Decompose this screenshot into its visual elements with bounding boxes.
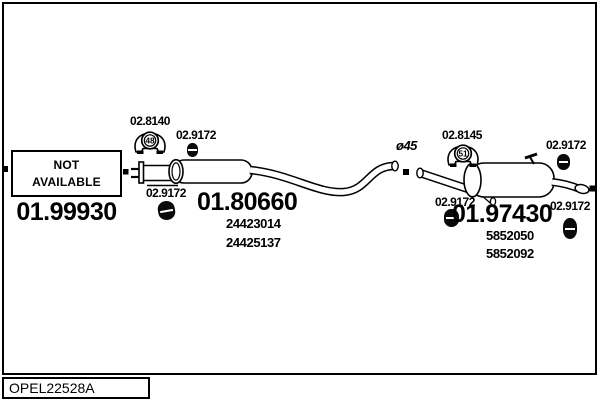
front-section-part-number: 01.99930 (11, 200, 122, 225)
front-connection-marker (2, 166, 8, 172)
clamp-icon-front-top (187, 143, 198, 157)
rear-silencer-shape (464, 163, 554, 197)
exhaust-parts-diagram: NOT AVAILABLE 01.99930 02.8140 48 02.917… (0, 0, 600, 400)
drawing-code-box: OPEL22528A (2, 377, 150, 399)
clamp-part-number-front-bottom: 02.9172 (146, 187, 186, 199)
clamp-icon-rear-top (557, 154, 570, 170)
not-available-box: NOT AVAILABLE (11, 150, 122, 197)
not-available-label: NOT AVAILABLE (28, 157, 106, 189)
clamp-part-number-rear-top: 02.9172 (546, 139, 586, 151)
tail-pipe-shape (552, 182, 590, 195)
front-gasket-part-number: 02.8140 (129, 115, 171, 127)
tail-end-marker (590, 186, 596, 192)
rear-silencer-oe-number-2: 5852092 (486, 247, 532, 260)
rear-silencer-part-number: 01.97430 (452, 202, 552, 227)
pipe-diameter-label: ø45 (396, 139, 417, 152)
clamp-icon-rear-bottom (563, 218, 577, 239)
rear-inlet-pipe-shape (417, 168, 468, 189)
front-joint-marker (123, 169, 129, 175)
middle-silencer-shape (169, 160, 252, 184)
middle-silencer-oe-number-2: 24425137 (226, 236, 281, 249)
front-gasket-bore: 48 (145, 136, 155, 145)
rear-gasket-icon: 51 (445, 141, 481, 168)
rear-gasket-part-number: 02.8145 (441, 129, 483, 141)
drawing-code: OPEL22528A (4, 380, 95, 396)
middle-silencer-part-number: 01.80660 (197, 190, 297, 215)
mid-joint-marker (403, 169, 409, 175)
front-gasket-icon: 48 (132, 128, 168, 155)
rear-gasket-bore: 51 (458, 149, 468, 158)
clamp-part-number-rear-bottom: 02.9172 (550, 200, 590, 212)
rear-silencer-oe-number-1: 5852050 (486, 229, 532, 242)
clamp-part-number-front-top: 02.9172 (176, 129, 216, 141)
middle-silencer-oe-number-1: 24423014 (226, 217, 281, 230)
